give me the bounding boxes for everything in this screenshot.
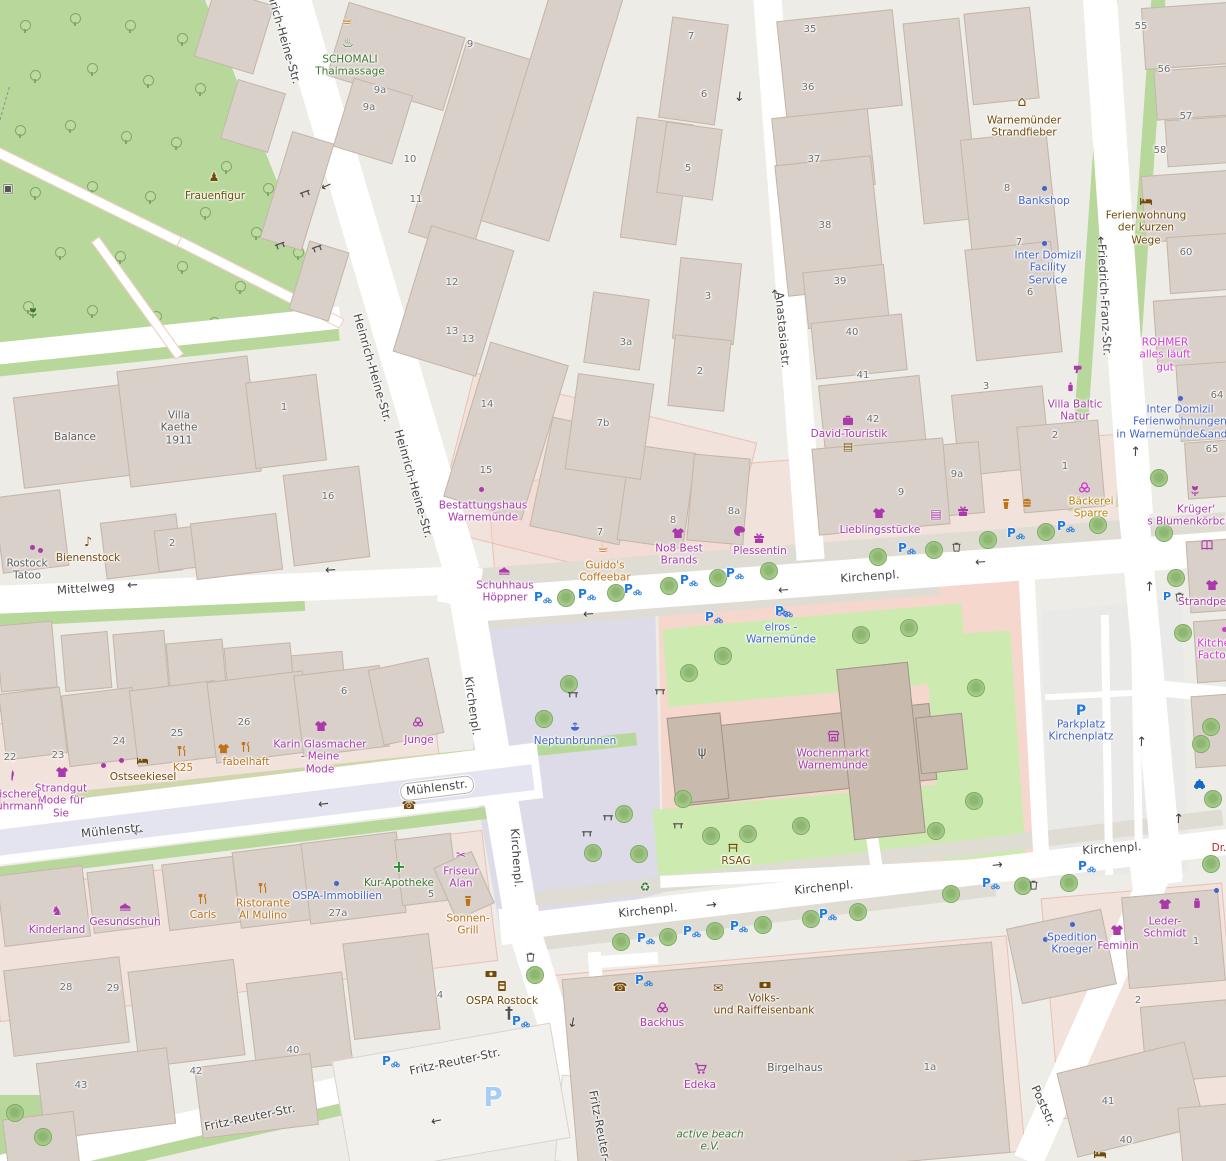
house-number: 25: [171, 728, 184, 740]
poi-balance: Balance: [54, 431, 96, 443]
street-label-kirchenpl-lower-1: Kirchenpl.: [618, 901, 678, 921]
house-number: 2: [1052, 430, 1058, 442]
house-number: 1: [1193, 936, 1199, 948]
house-number: 13: [462, 334, 475, 346]
house-number: 11: [410, 194, 423, 206]
poi-fabelhaft: fabelhaft: [223, 756, 270, 768]
house-number: 1: [281, 402, 287, 414]
poi-baeckerei-sparre: Bäckerei Sparre: [1068, 496, 1113, 521]
street-label-kirchenpl-vert-2: Kirchenpl.: [507, 828, 525, 888]
poi-gesundschuh: Gesundschuh: [89, 916, 160, 928]
house-number: 8a: [728, 506, 741, 518]
house-number: 2: [1135, 995, 1141, 1007]
poi-warnemuender-strandfieber: Warnemünder Strandfieber: [987, 115, 1061, 140]
poi-inter-domizil-fewo: Inter Domizil Ferienwohnungen in Warnemü…: [1116, 403, 1226, 440]
house-number: 9: [467, 39, 473, 51]
poi-carls: Carls: [190, 909, 216, 921]
house-number: 56: [1158, 64, 1171, 76]
street-label-mittelweg: Mittelweg: [57, 580, 116, 598]
poi-feminin: Feminin: [1097, 940, 1138, 952]
street-label-fritz-reuter-1: Fritz-Reuter-Str.: [203, 1102, 296, 1134]
poi-inter-domizil-facility: Inter Domizil Facility Service: [1015, 249, 1082, 286]
house-number: 8: [1004, 183, 1010, 195]
house-number: 6: [1027, 287, 1033, 299]
poi-villa-baltic-natur: Villa Baltic Natur: [1048, 399, 1103, 424]
poi-ostseekiesel: Ostseekiesel: [110, 771, 177, 783]
house-number: 40: [287, 1045, 300, 1057]
house-number: 14: [481, 399, 494, 411]
poi-kitchen-factory: Kitchen Factory: [1197, 638, 1226, 663]
house-number: 36: [802, 82, 815, 94]
poi-junge: Junge: [404, 734, 434, 746]
house-number: 26: [238, 717, 251, 729]
poi-elros: elros - Warnemünde: [746, 622, 816, 647]
poi-bestattungshaus: Bestattungshaus Warnemünde: [439, 500, 528, 525]
house-number: 6: [701, 89, 707, 101]
street-label-kirchenpl-lower-3: Kirchenpl.: [1082, 840, 1142, 858]
street-label-anastasiastr: Anastasiastr.: [772, 291, 792, 368]
poi-parkplatz-kirchenplatz: Parkplatz Kirchenplatz: [1048, 719, 1113, 744]
poi-birgelhaus: Birgelhaus: [767, 1062, 823, 1074]
poi-no8-best-brands: No8 Best Brands: [655, 543, 703, 568]
house-number: 1: [1062, 461, 1068, 473]
house-number: 27a: [329, 908, 348, 920]
house-number: 43: [75, 1080, 88, 1092]
poi-neptunbrunnen: Neptunbrunnen: [534, 735, 616, 747]
poi-ospa-immobilien: OSPA-Immobilien: [292, 890, 382, 902]
house-number: 39: [834, 276, 847, 288]
poi-ristorante-al-mulino: Ristorante Al Mulino: [236, 898, 290, 923]
house-number: 2: [697, 366, 703, 378]
house-number: 42: [190, 1066, 203, 1078]
poi-kur-apotheke: Kur-Apotheke: [364, 877, 434, 889]
poi-bankshop: Bankshop: [1018, 195, 1070, 207]
poi-schomali: SCHOMALI Thaimassage: [315, 54, 385, 79]
poi-karin-glasmacher: Karin Glasmacher - Meine Mode: [273, 738, 366, 775]
poi-ospa-rostock: OSPA Rostock: [466, 995, 538, 1007]
house-number: 3: [983, 381, 989, 393]
house-number: 2: [169, 538, 175, 550]
poi-strandperle: Strandperle: [1178, 596, 1226, 608]
street-label-heinrich-heine-3: Heinrich-Heine-Str.: [391, 428, 435, 540]
house-number: 9a: [951, 469, 964, 481]
house-number: 24: [113, 736, 126, 748]
street-label-poststr: Poststr.: [1028, 1083, 1058, 1128]
house-number: 29: [107, 983, 120, 995]
house-number: 9a: [374, 85, 387, 97]
house-number: 35: [804, 24, 817, 36]
house-number: 5: [685, 163, 691, 175]
street-label-kirchenpl-upper: Kirchenpl.: [840, 568, 900, 586]
poi-lieblingsstuecke: Lieblingsstücke: [840, 524, 921, 536]
street-label-kirchenpl-vert-1: Kirchenpl.: [461, 676, 483, 737]
house-number: 64: [1211, 390, 1224, 402]
label-layer: Heinrich-Heine-Str.Heinrich-Heine-Str.He…: [0, 0, 1226, 1161]
house-number: 40: [1120, 1135, 1133, 1147]
poi-rohmer: ROHMER alles läuft gut: [1139, 336, 1190, 373]
poi-ferienwohnung-kurze-wege: Ferienwohnung der kurzen Wege: [1106, 209, 1187, 246]
poi-bienenstock: Bienenstock: [56, 552, 120, 564]
street-label-friedrich-franz-str: Friedrich-Franz-Str.: [1094, 244, 1113, 356]
poi-fischerei: Fischerei Fuhrmann: [0, 789, 43, 814]
house-number: 12: [446, 277, 459, 289]
poi-rostock-tatoo: Rostock Tatoo: [6, 558, 47, 583]
house-number: 38: [819, 220, 832, 232]
house-number: 7: [597, 527, 603, 539]
poi-wochenmarkt: Wochenmarkt Warnemünde: [797, 748, 870, 773]
street-label-muehlenstr: Mühlenstr.: [81, 821, 144, 841]
house-number: 40: [846, 327, 859, 339]
house-number: 10: [404, 154, 417, 166]
poi-frauenfigur: Frauenfigur: [185, 190, 245, 202]
poi-kruegers-blumenkoerbchen: Krüger' s Blumenkörbchen: [1147, 504, 1226, 529]
poi-volksbank: Volks- und Raiffeisenbank: [714, 993, 815, 1018]
house-number: 57: [1180, 111, 1193, 123]
house-number: 65: [1206, 444, 1219, 456]
house-number: 1a: [924, 1062, 937, 1074]
house-number: 3a: [620, 337, 633, 349]
poi-edeka: Edeka: [684, 1079, 716, 1091]
poi-dr: Dr.: [1212, 842, 1226, 854]
house-number: 7b: [597, 418, 610, 430]
poi-villa-kaethe: Villa Kaethe 1911: [161, 409, 198, 446]
house-number: 15: [480, 465, 493, 477]
house-number: 8: [670, 515, 676, 527]
poi-plessentin: Plessentin: [733, 545, 786, 557]
street-label-heinrich-heine-2: Heinrich-Heine-Str.: [350, 312, 394, 424]
house-number: 41: [1102, 1096, 1115, 1108]
map-canvas[interactable]: ☕♨♟▣⌂▤▤☕ψ♻PP♪♞+✂†✉☎☎PPPPPPPPPPPPPPPPPPPP…: [0, 0, 1226, 1161]
house-number: 9a: [363, 102, 376, 114]
street-label-heinrich-heine-1: Heinrich-Heine-Str.: [259, 0, 303, 86]
poi-schuhhaus-hoeppner: Schuhhaus Höppner: [476, 580, 534, 605]
poi-rsag: RSAG: [721, 855, 750, 867]
house-number: 7: [688, 31, 694, 43]
house-number: 41: [857, 370, 870, 382]
house-number: 7: [1016, 237, 1022, 249]
street-label-fritz-reuter-3: Fritz-Reuter-Str.: [586, 1089, 617, 1161]
house-number: 28: [60, 982, 73, 994]
poi-guidos-coffeebar: Guido's Coffeebar: [579, 560, 630, 585]
poi-leder-schmidt: Leder- Schmidt: [1143, 916, 1186, 941]
poi-active-beach: active beach e.V.: [676, 1129, 743, 1154]
house-number: 23: [52, 750, 65, 762]
house-number: 13: [446, 326, 459, 338]
house-number: 16: [322, 491, 335, 503]
street-label-kirchenpl-lower-2: Kirchenpl.: [794, 878, 854, 898]
street-label-muehlenstr-pill: Mühlenstr.: [399, 775, 474, 801]
house-number: 37: [808, 154, 821, 166]
poi-friseur-alan: Friseur Alan: [443, 866, 478, 891]
street-label-fritz-reuter-2: Fritz-Reuter-Str.: [408, 1046, 501, 1078]
house-number: 3: [705, 291, 711, 303]
poi-spedition-kroeger: Spedition Kroeger: [1047, 932, 1097, 957]
house-number: 60: [1180, 247, 1193, 259]
poi-kinderland: Kinderland: [29, 924, 86, 936]
house-number: 4: [437, 990, 443, 1002]
poi-david-touristik: David-Touristik: [811, 428, 888, 440]
house-number: 58: [1154, 145, 1167, 157]
poi-sonnen-grill: Sonnen- Grill: [446, 913, 489, 938]
house-number: 5: [428, 889, 434, 901]
house-number: 9: [898, 487, 904, 499]
house-number: 42: [867, 414, 880, 426]
house-number: 6: [341, 686, 347, 698]
poi-backhus: Backhus: [640, 1017, 684, 1029]
house-number: 22: [4, 752, 17, 764]
house-number: 55: [1135, 21, 1148, 33]
